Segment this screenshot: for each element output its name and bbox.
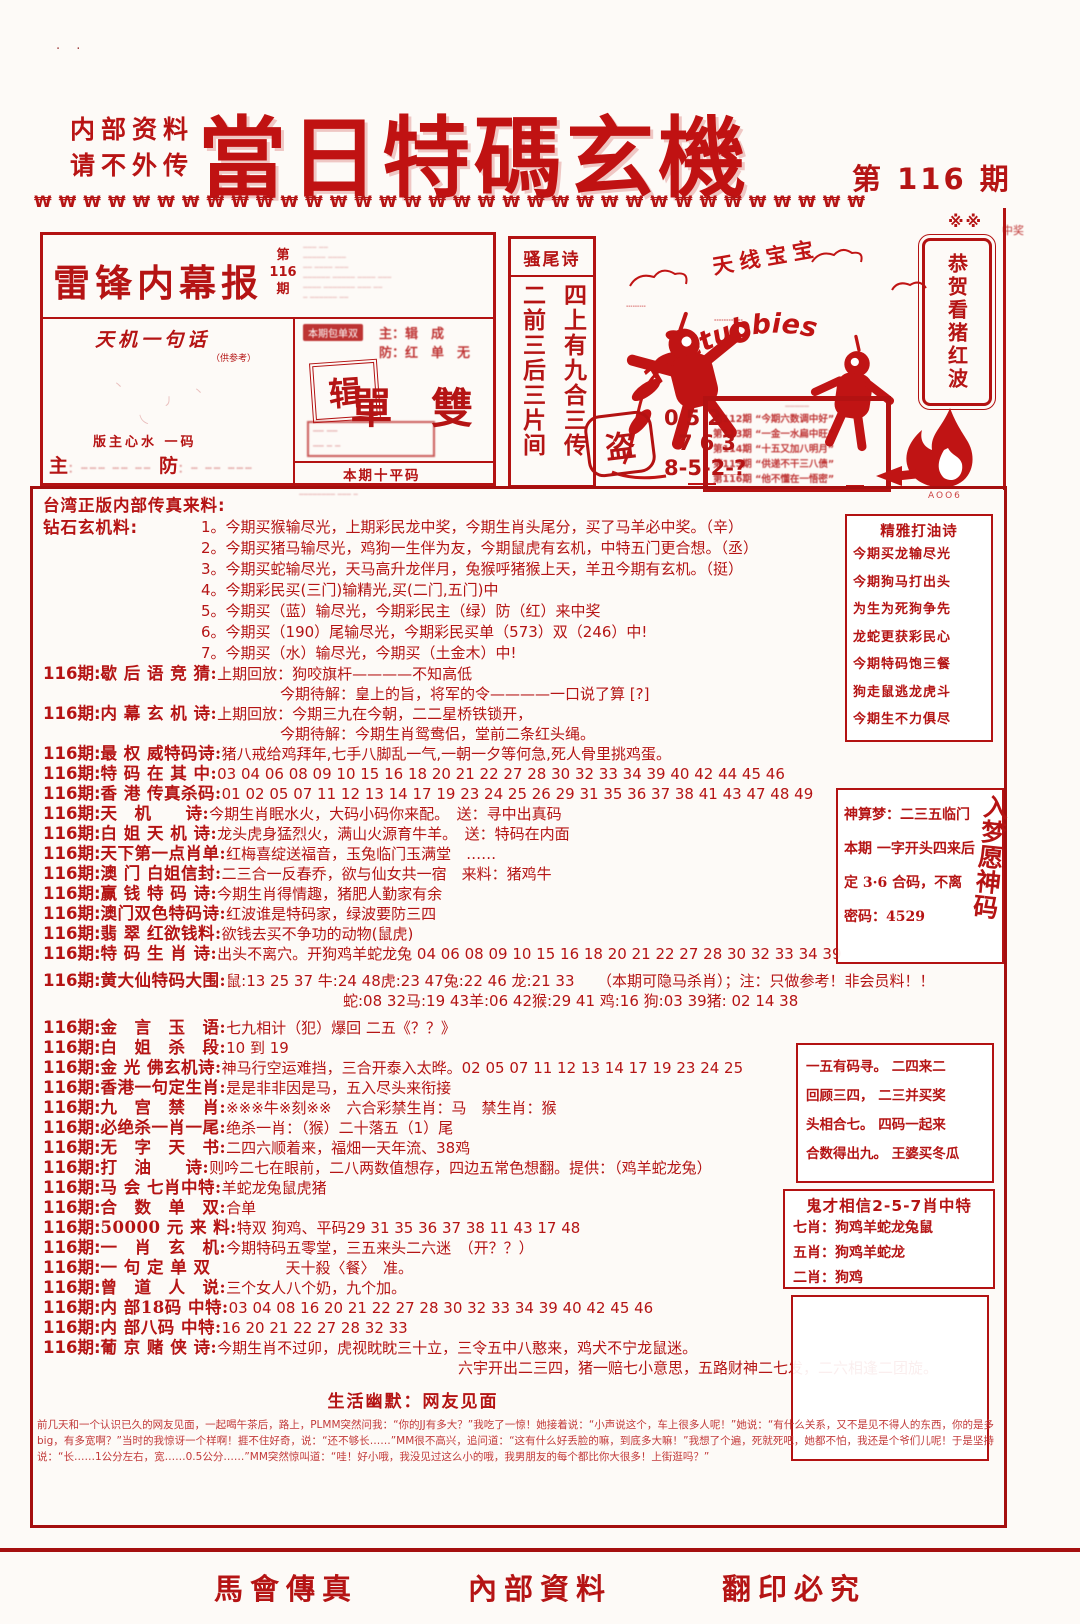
row-issue: 116期: [43, 924, 101, 943]
row-content: 03 04 08 16 20 21 22 27 28 30 32 33 34 3… [229, 1299, 654, 1317]
humor-title: 生活幽默：网友见面 [33, 1387, 793, 1412]
row-label: 曾 道 人 说: [101, 1278, 227, 1297]
tip-row: 116期:黄大仙特码大围:鼠:13 25 37 牛:24 48虎:23 47兔:… [43, 971, 1004, 1011]
row-issue: 116期: [43, 764, 101, 783]
row-content: 出头不离穴。开狗鸡羊蛇龙兔 04 06 08 09 10 15 16 18 20… [217, 945, 841, 963]
row-issue: 116期: [43, 1138, 101, 1157]
intro-item: 1。今期买猴输尽光，上期彩民龙中奖，今期生肖头尾分，买了马羊必中奖。（辛） [201, 517, 758, 538]
masthead-smallprint: ┄┄┄ ┄┄ ┄┄┄┄┄ ┄┄┄┄ ┄┄ ┄┄┄┄ ┄┄┄ ┄┄┄┄┄┄ ┄┄┄… [301, 235, 493, 317]
row-issue: 116期: [43, 824, 101, 843]
faint-mark: 乀 [138, 411, 149, 427]
row-content: 羊蛇龙兔鼠虎猪 [222, 1179, 327, 1197]
fang-label: 防 [159, 455, 178, 477]
row-content: 今期生肖得情趣，猪肥人勤家有余 [217, 885, 442, 903]
row-content: 二三合一反春乔，欲与仙女共一宿 来料：猪鸡牛 [222, 865, 552, 883]
blurred-stamp-1: ┄┄┄ [626, 300, 646, 313]
zodiac-picks-line: 五肖：狗鸡羊蛇龙 [793, 1241, 985, 1266]
row-issue: 116期: [43, 1178, 101, 1197]
dayou-line: 今期狗马打出头 [853, 569, 985, 597]
confidential-note: 内部资料 请不外传 [70, 112, 194, 184]
tip-row: 116期:特 码 在 其 中:03 04 06 08 09 10 15 16 1… [43, 764, 1004, 784]
row-content: 绝杀一肖：（猴）二十落五（1）尾 [226, 1119, 453, 1137]
row-label: 必绝杀一肖一尾: [101, 1118, 227, 1137]
row-label: 内 部八码 中特: [101, 1318, 222, 1337]
row-content: 鼠:13 25 37 牛:24 48虎:23 47兔:22 46 龙:21 33… [226, 972, 934, 990]
dayou-line: 今期生不力俱尽 [853, 706, 985, 734]
row-content: 今期特码五零堂，三五来头二六迷 （开？？） [226, 1239, 534, 1257]
row-content: ※※※牛※刻※※ 六合彩禁生肖：马 禁生肖：猴 [226, 1099, 556, 1117]
fang-illegible: ：┄ ┄┄ ┄┄┄ [178, 462, 254, 475]
row-content: 龙头虎身猛烈火，满山火源育牛羊。 送：特码在内面 [217, 825, 570, 843]
row-content: 16 20 21 22 27 28 32 33 [222, 1319, 408, 1337]
tianji-subnote: （供参考） [211, 351, 256, 364]
row-content: 猪八戒给鸡拜年,七手八脚乱一气,一朝一夕等何急,死人骨里挑鸡蛋。 [222, 745, 671, 763]
row-label: 打 油 诗: [101, 1158, 210, 1177]
zodiac-picks-title: 鬼才相信2-5-7肖中特 [793, 1194, 985, 1216]
row-issue: 116期: [43, 704, 101, 723]
dayou-title: 精雅打油诗 [853, 520, 985, 541]
issue-char-mid: 116 [265, 264, 301, 281]
row-content: 神马行空运难挡，三合开泰入太晔。02 05 07 11 12 13 14 17 … [222, 1059, 744, 1077]
danshuang-panel: 本期包单双 主：辑 成 防：红 单 无 辑 單 雙 ┄┄ ┄┄ ┄┄ ┄ ┄ 本… [295, 319, 493, 484]
row-content: 三个女人八个奶，九个加。 [226, 1279, 406, 1297]
row-issue: 116期: [43, 1198, 101, 1217]
row-label: 澳门双色特码诗: [101, 904, 227, 923]
row-gap [43, 964, 1004, 971]
smallprint-line: ┄┄ ┄┄┄┄ ┄┄┄ [303, 263, 489, 273]
row-content: 03 04 06 08 09 10 15 16 18 20 21 22 27 2… [217, 765, 785, 783]
intro-item: 4。今期彩民买(三门)输精光,买(二门,五门)中 [201, 580, 758, 601]
row-issue: 116期: [43, 884, 101, 903]
row-content: 是是非非因是马，五入尽头来衔接 [226, 1079, 451, 1097]
dao-stamp: 盗 [582, 409, 657, 479]
smallprint-line: ┄┄┄┄┄┄ ┄┄┄┄┄ ┄┄┄┄ ┄┄┄ [303, 273, 489, 283]
plaque-line: 第114期 “十五又加八明月” [713, 442, 881, 457]
plaque-line: 第116期 “他不懂在一悟密” [713, 472, 881, 487]
panel-divider [295, 461, 493, 463]
plaque-line: 第115期 “供递不干三八债” [713, 457, 881, 472]
zodiac-picks-line: 二肖：狗鸡 [793, 1266, 985, 1291]
row-content: 天十殺〈餐〉 准。 [211, 1259, 414, 1277]
small-note-line: ┄┄ ┄┄ [313, 425, 429, 440]
row-issue: 116期: [43, 1158, 101, 1177]
row-issue: 116期: [43, 664, 101, 683]
decor-row: ₩₩₩₩₩₩₩₩₩₩₩₩₩₩₩₩₩₩₩₩₩₩₩₩₩₩₩₩₩₩₩₩₩₩ [34, 192, 1048, 211]
smallprint-line: ┄ ┄┄┄┄┄┄ ┄┄ [303, 293, 489, 303]
row-issue: 116期: [43, 1018, 101, 1037]
congrats-banner-text: 恭贺看猪红波 [943, 253, 972, 391]
tail-poem-col2: 二前三后三片间 [515, 283, 549, 487]
row-label: 无 字 天 书: [101, 1138, 227, 1157]
row-issue: 116期: [43, 1318, 101, 1337]
row-label: 金 光 佛玄机诗: [101, 1058, 222, 1077]
zodiac-picks-line: 七肖：狗鸡羊蛇龙兔鼠 [793, 1216, 985, 1241]
intro-item: 2。今期买猪马输尽光，鸡狗一生伴为友，今期鼠虎有玄机，中特五门更合想。（丞） [201, 538, 758, 559]
row-issue: 116期: [43, 944, 101, 963]
past-issues-plaque: ┄┄┄┄┄ 第112期 “今期六数调中好” 第113期 “一金一水扁中旺” 第1… [703, 396, 891, 492]
dayou-line: 今期特码饱三餐 [853, 651, 985, 679]
dayou-line: 为生为死狗争先 [853, 596, 985, 624]
row-label: 香 港 传真杀码: [101, 784, 222, 803]
row-content: 10 到 19 [226, 1039, 289, 1057]
zhu-label: 主 [49, 455, 68, 477]
row-issue: 116期: [43, 1278, 101, 1297]
row-label: 白 姐 天 机 诗: [101, 824, 218, 843]
zhu-fang-line: 主：┄┄┄ ┄┄ ┄┄ 防：┄ ┄┄ ┄┄┄ [49, 451, 254, 478]
riddle-line: 回顾三四， 二三并买奖 [806, 1082, 984, 1111]
footer-item-3: 翻印必究 [722, 1566, 866, 1608]
dream-oracle-box: 神算梦：二三五临门 本期 一字开头四来后 定 3·6 合码，不离 密码：4529… [836, 788, 1004, 964]
dayou-line: 狗走鼠逃龙虎斗 [853, 679, 985, 707]
intro-item: 3。今期买蛇输尽光，天马高升龙伴月，兔猴呼猪猴上天，羊丑今期有玄机。（挺） [201, 559, 758, 580]
row-label: 内 幕 玄 机 诗: [101, 704, 218, 723]
row-issue: 116期: [43, 1058, 101, 1077]
masthead-issue: 第 116 期 [265, 235, 301, 317]
row-label: 特 码 在 其 中: [101, 764, 218, 783]
row-content: 特双 狗鸡、平码29 31 35 36 37 38 11 43 17 48 [237, 1219, 581, 1237]
intro-item: 7。今期买（水）输尽光，今期买（土金木）中! [201, 643, 758, 664]
tianji-panel: 天机一句话 （供参考） 丶 丿 乀 丶 版主心水 一码 主：┄┄┄ ┄┄ ┄┄ … [43, 319, 295, 484]
row-label: 一 句 定 单 双 [101, 1258, 211, 1277]
dayou-line: 今期买龙输尽光 [853, 541, 985, 569]
plaque-line: 第112期 “今期六数调中好” [713, 412, 881, 427]
faint-mark: 丿 [163, 393, 174, 409]
row-issue: 116期: [43, 1118, 101, 1137]
row-issue: 116期: [43, 1218, 101, 1237]
plaque-header: ┄┄┄┄┄ [713, 402, 881, 412]
tail-poem-box: 骚尾诗 四上有九合三传 二前三后三片间 [508, 236, 596, 488]
confidential-line1: 内部资料 [70, 112, 194, 148]
row-label: 歇 后 语 竞 猜: [101, 664, 218, 683]
row-label: 金 言 玉 语: [101, 1018, 227, 1037]
issue-char-top: 第 [265, 247, 301, 264]
row-content: 合单 [226, 1199, 256, 1217]
row-label: 澳 门 白姐信封: [101, 864, 222, 883]
tianji-title: 天机一句话 [95, 325, 210, 352]
dayou-line: 龙蛇更获彩民心 [853, 624, 985, 652]
faint-mark: 丶 [193, 383, 204, 399]
dayou-poem-box: 精雅打油诗 今期买龙输尽光 今期狗马打出头 为生为死狗争先 龙蛇更获彩民心 今期… [845, 514, 993, 742]
confidential-line2: 请不外传 [70, 148, 194, 184]
row-issue: 116期: [43, 844, 101, 863]
row-label: 内 部18码 中特: [101, 1298, 229, 1317]
row-label: 翡 翠 红欲钱料: [101, 924, 222, 943]
tip-sheet-page: · · 内部资料 请不外传 當日特碼玄機 第 116 期 ₩₩₩₩₩₩₩₩₩₩₩… [0, 0, 1080, 1624]
masthead-header: 雷锋内幕报 第 116 期 ┄┄┄ ┄┄ ┄┄┄┄┄ ┄┄┄┄ ┄┄ ┄┄┄┄ … [43, 235, 493, 319]
footer-item-1: 馬會傳真 [214, 1566, 358, 1608]
intro-item: 6。今期买（190）尾输尽光，今期彩民买单（573）双（246）中! [201, 622, 758, 643]
row-issue: 116期: [43, 864, 101, 883]
row-label: 葡 京 赌 侠 诗: [101, 1338, 218, 1357]
masthead-title: 雷锋内幕报 [43, 235, 265, 317]
riddle-line: 头相合七。 四码一起来 [806, 1111, 984, 1140]
tip-row: 116期:最 权 威特码诗:猪八戒给鸡拜年,七手八脚乱一气,一朝一夕等何急,死人… [43, 744, 1004, 764]
smallprint-line: ┄┄┄┄ ┄┄┄┄┄┄┄ ┄┄┄ ┄┄ [303, 283, 489, 293]
faint-mark: 丶 [113, 377, 124, 393]
row-content: 红梅喜绽送福音，玉兔临门玉满堂 …… [226, 845, 496, 863]
row-content: 01 02 05 07 11 12 13 14 17 19 23 24 25 2… [222, 785, 814, 803]
oracle-line: 神算梦：二三五临门 [844, 798, 996, 832]
masthead-body: 天机一句话 （供参考） 丶 丿 乀 丶 版主心水 一码 主：┄┄┄ ┄┄ ┄┄ … [43, 319, 493, 484]
row-issue: 116期: [43, 744, 101, 763]
tail-poem-col1: 四上有九合三传 [556, 283, 590, 487]
row-content: 则吟二七在眼前，二八两数值想存，四边五常色想翻。提供：（鸡羊蛇龙兔） [209, 1159, 712, 1177]
zodiac-picks-box: 鬼才相信2-5-7肖中特 七肖：狗鸡羊蛇龙兔鼠 五肖：狗鸡羊蛇龙 二肖：狗鸡 [783, 1189, 995, 1289]
small-note-line: ┄┄ ┄ ┄ [313, 440, 429, 455]
row-label: 合 数 单 双: [101, 1198, 227, 1217]
row-issue: 116期: [43, 1258, 101, 1277]
teletubbies-cn-label: 天线宝宝 [711, 237, 822, 279]
row-issue: 116期: [43, 971, 101, 990]
footer-rule [0, 1548, 1080, 1552]
footer-item-2: 內部資料 [468, 1566, 612, 1608]
zhu-fang-picks: 主：辑 成 防：红 单 无 [379, 325, 487, 363]
row-issue: 116期: [43, 904, 101, 923]
row-issue: 116期: [43, 1098, 101, 1117]
small-note-box: ┄┄ ┄┄ ┄┄ ┄ ┄ [307, 421, 435, 457]
row-label: 天下第一点肖单: [101, 844, 227, 863]
row-content: 二四六顺着来，福畑一天年流、38鸡 [226, 1139, 470, 1157]
row-issue: 116期: [43, 1338, 101, 1357]
row-gap [43, 1011, 1004, 1018]
row-issue: 116期: [43, 1078, 101, 1097]
row-issue: 116期: [43, 804, 101, 823]
row-label: 一 肖 玄 机: [101, 1238, 227, 1257]
row-content: 今期生肖眠水火，大码小码你来配。 送：寻中出真码 [209, 805, 562, 823]
row-label: 特 码 生 肖 诗: [101, 944, 218, 963]
issue-char-bot: 期 [265, 281, 301, 298]
row-label: 白 姐 杀 段: [101, 1038, 227, 1057]
panel-tag: 本期包单双 [303, 324, 363, 341]
row-content: 上期回放：狗咬旗杆————不知高低 [217, 665, 472, 683]
smallprint-line: ┄┄┄┄┄ ┄┄┄┄ [303, 253, 489, 263]
tip-row: 116期:金 言 玉 语:七九相计（犯）爆回 二五《？？》 [43, 1018, 1004, 1038]
leifeng-masthead-box: 雷锋内幕报 第 116 期 ┄┄┄ ┄┄ ┄┄┄┄┄ ┄┄┄┄ ┄┄ ┄┄┄┄ … [40, 232, 496, 486]
smallprint-line: ┄┄┄ ┄┄ [303, 243, 489, 253]
footer: 馬會傳真 內部資料 翻印必究 [0, 1566, 1080, 1608]
oracle-line: 本期 一字开头四来后 [844, 832, 996, 866]
row-label: 马 会 七肖中特: [101, 1178, 222, 1197]
banzhu-line: 版主心水 一码 [93, 431, 197, 450]
row-issue: 116期: [43, 1038, 101, 1057]
row-label: 50000 元 来 料: [101, 1218, 237, 1237]
fang-pick: 防：红 单 无 [379, 344, 487, 363]
intro-items: 1。今期买猴输尽光，上期彩民龙中奖，今期生肖头尾分，买了马羊必中奖。（辛） 2。… [201, 517, 758, 664]
flame-graphic: AOO6 [872, 400, 1002, 500]
main-content-box: 台湾正版内部传真来料: 钻石玄机料: 1。今期买猴输尽光，上期彩民龙中奖，今期生… [30, 486, 1007, 1528]
riddle-line: 合数得出九。 王婆买冬瓜 [806, 1140, 984, 1169]
intro-label: 钻石玄机料: [43, 517, 201, 664]
plaque-line: 第113期 “一金一水扁中旺” [713, 427, 881, 442]
decor-stars: ※※ [948, 212, 983, 231]
corner-marks: · · [56, 42, 86, 57]
row-label: 最 权 威特码诗: [101, 744, 222, 763]
row-label: 黄大仙特码大围: [101, 971, 227, 990]
row-content-2: 蛇:08 32马:19 43羊:06 42猴:29 41 鸡:16 狗:03 3… [343, 991, 1004, 1011]
row-label: 香港一句定生肖: [101, 1078, 227, 1097]
row-content: 红波谁是特码家，绿波要防三四 [226, 905, 436, 923]
humor-paragraph: 前几天和一个认识已久的网友见面，一起喝午茶后，路上，PLMM突然问我：“你的JJ… [37, 1417, 994, 1465]
row-issue: 116期: [43, 784, 101, 803]
tail-poem-title: 骚尾诗 [511, 239, 593, 277]
row-content: 七九相计（犯）爆回 二五《？？》 [226, 1019, 456, 1037]
row-content: 上期回放：今期三九在今朝，二二星桥铁锁开， [217, 705, 532, 723]
riddle-box: 一五有码寻。 二四来二 回顾三四， 二三并买奖 头相合七。 四码一起来 合数得出… [796, 1043, 994, 1183]
zhu-pick: 主：辑 成 [379, 325, 487, 344]
tail-poem-body: 四上有九合三传 二前三后三片间 [511, 277, 593, 487]
row-issue: 116期: [43, 1238, 101, 1257]
row-label: 九 宫 禁 肖: [101, 1098, 227, 1117]
row-issue: 116期: [43, 1298, 101, 1317]
intro-item: 5。今期买（蓝）输尽光，今期彩民主（绿）防（红）来中奖 [201, 601, 758, 622]
row-content: 欲钱去买不争功的动物(鼠虎) [222, 925, 414, 943]
row-label: 赢 钱 特 码 诗: [101, 884, 218, 903]
row-content: 今期生肖不过卯，虎视眈眈三十立，三令五中八憨来，鸡犬不宁龙鼠迷。 [217, 1339, 697, 1357]
riddle-line: 一五有码寻。 二四来二 [806, 1053, 984, 1082]
zhu-illegible: ：┄┄┄ ┄┄ ┄┄ [68, 462, 152, 475]
right-rule [1003, 208, 1006, 490]
row-label: 天 机 诗: [101, 804, 210, 823]
congrats-banner: 恭贺看猪红波 [922, 238, 992, 406]
